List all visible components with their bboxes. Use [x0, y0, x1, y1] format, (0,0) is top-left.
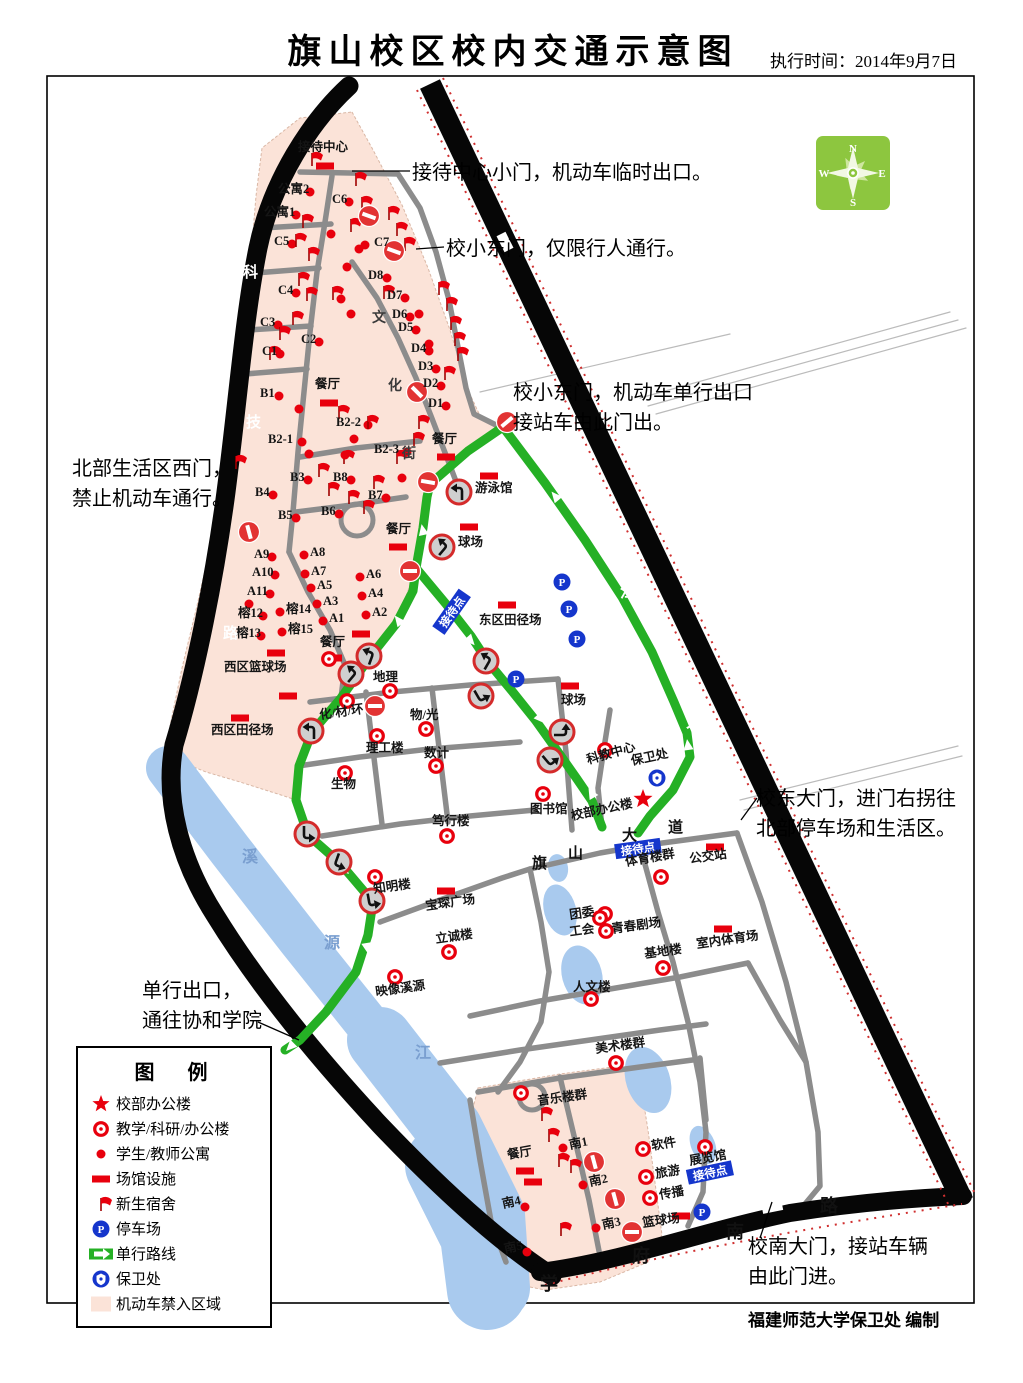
building-label: 榕14 — [286, 601, 312, 616]
legend-label: 单行路线 — [116, 1243, 176, 1264]
legend-label: 学生/教师公寓 — [116, 1143, 210, 1164]
legend-label: 新生宿舍 — [116, 1193, 176, 1214]
annotation-4: 北部生活区西门，禁止机动车通行。 — [72, 454, 232, 514]
rect-icon — [320, 400, 338, 407]
campus-traffic-map-page: 旗山校区校内交通示意图 执行时间：2014年9月7日 PPPPP接待点接待点接待… — [0, 0, 1023, 1383]
building-label: B8 — [333, 470, 348, 484]
rect-icon — [480, 473, 498, 480]
building-label: B5 — [278, 508, 293, 522]
dot-icon — [383, 274, 392, 283]
donut-icon — [420, 723, 433, 736]
turn-icon — [538, 748, 562, 772]
dot-icon — [362, 611, 371, 620]
building-label: 餐厅 — [319, 634, 346, 649]
compass-rose: NESW — [816, 136, 890, 210]
rect-icon — [389, 544, 407, 551]
building-label: 餐厅 — [314, 376, 341, 391]
building-label: 西区田径场 — [211, 722, 274, 737]
building-label: 榕12 — [238, 605, 263, 620]
parking-letter: P — [574, 634, 581, 646]
building-label: C1 — [262, 344, 277, 358]
road-name-char: 南 — [726, 1221, 744, 1242]
rect-legend-icon — [87, 1169, 115, 1189]
donut-icon — [95, 1122, 108, 1135]
legend: 图 例 校部办公楼教学/科研/办公楼学生/教师公寓场馆设施新生宿舍P停车场单行路… — [76, 1046, 272, 1328]
building-label: A7 — [311, 564, 326, 578]
building-label: C3 — [260, 315, 275, 329]
oneway-legend-icon — [87, 1244, 115, 1264]
rect-icon — [92, 1175, 110, 1182]
building-label: C5 — [274, 234, 289, 248]
building-label: 传播 — [657, 1183, 686, 1202]
dot-icon — [301, 570, 310, 579]
building-label: C4 — [278, 283, 294, 297]
building-label: A9 — [254, 547, 269, 561]
road-name-char: 源 — [324, 933, 340, 952]
building-label: 榕13 — [236, 625, 261, 640]
annotation-line: 禁止机动车通行。 — [72, 484, 232, 514]
building-label: 西区篮球场 — [224, 659, 287, 674]
rect-icon — [316, 163, 334, 170]
dot-icon — [276, 608, 285, 617]
building-label: B7 — [368, 488, 383, 502]
building-label: D1 — [428, 396, 443, 410]
p-icon: P — [508, 671, 525, 688]
road-name-char: 技 — [246, 413, 262, 431]
donut-icon — [585, 993, 598, 1006]
road-name-char: 旗 — [532, 854, 547, 872]
building-label: B4 — [255, 485, 270, 499]
building-label: 立诚楼 — [434, 926, 474, 946]
building-label: B1 — [260, 386, 275, 400]
building-label: D2 — [423, 376, 438, 390]
legend-item-oneway: 单行路线 — [86, 1241, 262, 1266]
legend-label: 停车场 — [116, 1218, 161, 1239]
donut-icon — [657, 962, 670, 975]
annotation-2: 校小东门，仅限行人通行。 — [446, 234, 686, 264]
annotation-line: 由此门进。 — [748, 1262, 928, 1292]
p-icon: P — [569, 631, 586, 648]
building-label: 球场 — [561, 692, 586, 707]
building-label: 公寓2 — [278, 181, 309, 196]
dot-icon — [313, 600, 322, 609]
rect-icon — [437, 888, 455, 895]
donut-icon — [430, 760, 443, 773]
building-label: 科教中心 — [585, 739, 638, 767]
annotation-line: 校南大门，接站车辆 — [748, 1232, 928, 1262]
annotation-line: 北部停车场和生活区。 — [756, 814, 956, 844]
rect-icon — [279, 693, 297, 700]
building-label: 笃行楼 — [431, 813, 470, 828]
annotation-7: 校南大门，接站车辆由此门进。 — [748, 1232, 928, 1292]
building-label: 餐厅 — [431, 431, 458, 446]
noentry-icon — [400, 561, 421, 582]
legend-item-p: P停车场 — [86, 1216, 262, 1241]
parking-letter: P — [699, 1207, 706, 1219]
dot-icon — [337, 295, 346, 304]
rect-icon — [267, 650, 285, 657]
building-label: 软件 — [650, 1134, 678, 1153]
flag-icon — [101, 1196, 112, 1210]
road-name-char: 路 — [223, 624, 239, 642]
dot-icon — [355, 245, 364, 254]
dot-icon — [295, 405, 304, 414]
dot-icon — [415, 310, 424, 319]
building-label: D5 — [398, 320, 413, 334]
annotation-3: 校小东门，机动车单行出口接站车由此门出。 — [513, 378, 753, 438]
compass-s: S — [850, 197, 856, 209]
building-label: 东区田径场 — [479, 612, 542, 627]
building-label: A4 — [368, 586, 384, 600]
building-label: A3 — [323, 594, 338, 608]
rect-icon — [437, 454, 455, 461]
road-name-char: 府 — [632, 1245, 650, 1266]
p-legend-icon: P — [87, 1219, 115, 1239]
legend-label: 场馆设施 — [116, 1168, 176, 1189]
dot-icon — [307, 584, 316, 593]
dot-icon — [343, 263, 352, 272]
parking-letter: P — [566, 604, 573, 616]
p-icon: P — [554, 574, 571, 591]
parking-letter: P — [98, 1224, 105, 1236]
dot-icon — [278, 628, 287, 637]
annotation-5: 校东大门，进门右拐往北部停车场和生活区。 — [756, 784, 956, 844]
legend-item-zone: 机动车禁入区域 — [86, 1291, 262, 1316]
legend-item-flag: 新生宿舍 — [86, 1191, 262, 1216]
dot-icon — [592, 1224, 601, 1233]
annotation-line: 接站车由此门出。 — [513, 408, 753, 438]
building-label: A6 — [366, 567, 381, 581]
building-label: A5 — [317, 578, 332, 592]
building-label: 基地楼 — [642, 941, 683, 961]
badge-icon — [93, 1270, 110, 1287]
building-label: 接待中心 — [298, 139, 349, 154]
turn-icon — [299, 719, 323, 743]
building-label: C6 — [332, 192, 347, 206]
building-label: B2-3 — [374, 442, 399, 456]
noentry-icon — [622, 1222, 643, 1243]
donut-icon — [443, 946, 456, 959]
road-name-char: 江 — [415, 1044, 431, 1062]
noentry-icon — [365, 696, 386, 717]
annotation-6: 单行出口，通往协和学院 — [142, 976, 262, 1036]
compass-w: W — [819, 168, 830, 180]
annotation-1: 接待中心小门，机动车临时出口。 — [412, 158, 712, 188]
donut-icon — [640, 1171, 653, 1184]
dot-icon — [269, 491, 278, 500]
legend-item-donut: 教学/科研/办公楼 — [86, 1116, 262, 1141]
rect-icon — [516, 1168, 534, 1175]
building-label: B2-2 — [336, 415, 361, 429]
turn-icon — [474, 649, 498, 673]
turn-icon — [327, 850, 351, 874]
building-label: A2 — [372, 605, 387, 619]
building-label: A1 — [329, 611, 344, 625]
dot-icon — [327, 230, 336, 239]
annotation-line: 北部生活区西门， — [72, 454, 232, 484]
donut-icon — [537, 788, 550, 801]
donut-icon — [384, 685, 397, 698]
p-icon: P — [561, 601, 578, 618]
p-icon: P — [93, 1220, 110, 1237]
road-name-char: 道 — [772, 892, 788, 911]
dot-icon — [358, 592, 367, 601]
dot-icon — [350, 435, 359, 444]
road-name-char: 大 — [686, 712, 702, 731]
building-label: C2 — [301, 332, 316, 346]
dot-icon — [382, 494, 391, 503]
credit: 福建师范大学保卫处 编制 — [748, 1306, 939, 1331]
dot-icon — [319, 617, 328, 626]
annotation-line: 校东大门，进门右拐往 — [756, 784, 956, 814]
building-label: 人文楼 — [573, 979, 611, 994]
building-label: A11 — [247, 584, 268, 598]
dot-legend-icon — [87, 1144, 115, 1164]
building-label: B2-1 — [268, 432, 293, 446]
road-name-char: 学 — [540, 1273, 558, 1294]
building-label: 餐厅 — [385, 521, 412, 536]
compass-e: E — [878, 168, 885, 180]
compass-n: N — [849, 143, 857, 155]
badge-icon — [649, 770, 666, 787]
dot-icon — [347, 476, 356, 485]
parking-letter: P — [559, 577, 566, 589]
building-label: 青春剧场 — [610, 914, 662, 936]
legend-items: 校部办公楼教学/科研/办公楼学生/教师公寓场馆设施新生宿舍P停车场单行路线保卫处… — [86, 1091, 262, 1316]
road-name-char: 大 — [622, 826, 637, 844]
building-label: D4 — [411, 341, 427, 355]
dot-icon — [347, 310, 356, 319]
turn-icon — [357, 644, 381, 668]
road-name-char: 道 — [668, 818, 683, 836]
turn-icon — [430, 535, 454, 559]
star-icon — [633, 789, 652, 807]
building-label: B3 — [290, 470, 305, 484]
building-label: 地理 — [373, 669, 399, 684]
dot-icon — [292, 514, 301, 523]
road-name-char: 化 — [388, 377, 402, 394]
badge-legend-icon — [87, 1269, 115, 1289]
road-name-char: 龙 — [551, 445, 568, 464]
turn-icon — [295, 822, 319, 846]
building-label: A8 — [310, 545, 325, 559]
dot-icon — [305, 450, 314, 459]
legend-title: 图 例 — [86, 1054, 262, 1091]
building-label: C7 — [374, 235, 389, 249]
road-name-char: 江 — [620, 583, 636, 601]
annotation-line: 校小东门，仅限行人通行。 — [446, 234, 686, 264]
rect-icon — [498, 602, 516, 609]
annotation-line: 单行出口， — [142, 976, 262, 1006]
legend-item-dot: 学生/教师公寓 — [86, 1141, 262, 1166]
dot-icon — [341, 451, 350, 460]
building-label: 球场 — [458, 534, 483, 549]
flag-legend-icon — [87, 1194, 115, 1214]
star-icon — [92, 1095, 109, 1111]
legend-item-star: 校部办公楼 — [86, 1091, 262, 1116]
rect-icon — [460, 524, 478, 531]
road-name-char: 溪 — [242, 847, 259, 866]
rect-icon — [231, 715, 249, 722]
dot-icon — [298, 438, 307, 447]
dot-icon — [304, 476, 313, 485]
legend-label: 机动车禁入区域 — [116, 1293, 221, 1314]
building-label: B6 — [321, 504, 336, 518]
building-label: D6 — [392, 307, 407, 321]
road-name-char: 科 — [243, 263, 258, 281]
legend-label: 校部办公楼 — [116, 1093, 191, 1114]
annotation-line: 通往协和学院 — [142, 1006, 262, 1036]
legend-label: 保卫处 — [116, 1268, 161, 1289]
building-label: 旅游 — [653, 1162, 682, 1181]
dot-icon — [559, 1144, 568, 1153]
rect-icon — [561, 683, 579, 690]
rect-icon — [352, 631, 370, 638]
donut-icon — [644, 1192, 657, 1205]
building-label: D8 — [368, 268, 383, 282]
building-label: 数计 — [423, 745, 450, 760]
building-label: 榕15 — [288, 621, 313, 636]
dot-icon — [356, 573, 365, 582]
parking-letter: P — [513, 674, 520, 686]
legend-item-badge: 保卫处 — [86, 1266, 262, 1291]
building-label: 公寓1 — [264, 204, 295, 219]
zone-legend-icon — [87, 1294, 115, 1314]
road-name-char: 街 — [401, 445, 416, 462]
dot-icon — [275, 392, 284, 401]
rect-icon — [524, 1179, 542, 1186]
building-label: 物/光 — [410, 707, 439, 722]
turn-icon — [550, 720, 574, 744]
dot-icon — [97, 1149, 106, 1158]
donut-icon — [637, 1143, 650, 1156]
building-label: A10 — [252, 565, 274, 579]
building-label: 理工楼 — [366, 740, 404, 755]
donut-icon — [594, 912, 607, 925]
road-name-char: 文 — [372, 309, 387, 326]
donut-icon — [610, 1057, 623, 1070]
building-label: 生物 — [331, 776, 357, 791]
turn-icon — [469, 684, 493, 708]
p-icon: P — [694, 1204, 711, 1221]
dot-icon — [398, 474, 407, 483]
dot-icon — [300, 551, 309, 560]
turn-icon — [447, 480, 471, 504]
building-label: 游泳馆 — [475, 480, 513, 495]
building-label: D3 — [418, 359, 433, 373]
building-label: 公交站 — [688, 846, 728, 866]
road-name-char: 乌 — [586, 274, 602, 293]
turn-icon — [339, 662, 363, 686]
building-label: D7 — [387, 288, 402, 302]
donut-icon — [515, 1087, 528, 1100]
road-name-char: 路 — [820, 1195, 839, 1216]
dot-icon — [579, 1181, 588, 1190]
donut-legend-icon — [87, 1119, 115, 1139]
star-legend-icon — [87, 1094, 115, 1114]
annotation-line: 接待中心小门，机动车临时出口。 — [412, 158, 712, 188]
dot-icon — [335, 510, 344, 519]
donut-icon — [655, 871, 668, 884]
road-name-char: 山 — [568, 845, 583, 862]
legend-label: 教学/科研/办公楼 — [116, 1118, 229, 1139]
annotation-line: 校小东门，机动车单行出口 — [513, 378, 753, 408]
legend-item-rect: 场馆设施 — [86, 1166, 262, 1191]
donut-icon — [441, 830, 454, 843]
building-label: 图书馆 — [530, 801, 568, 816]
donut-icon — [323, 653, 336, 666]
